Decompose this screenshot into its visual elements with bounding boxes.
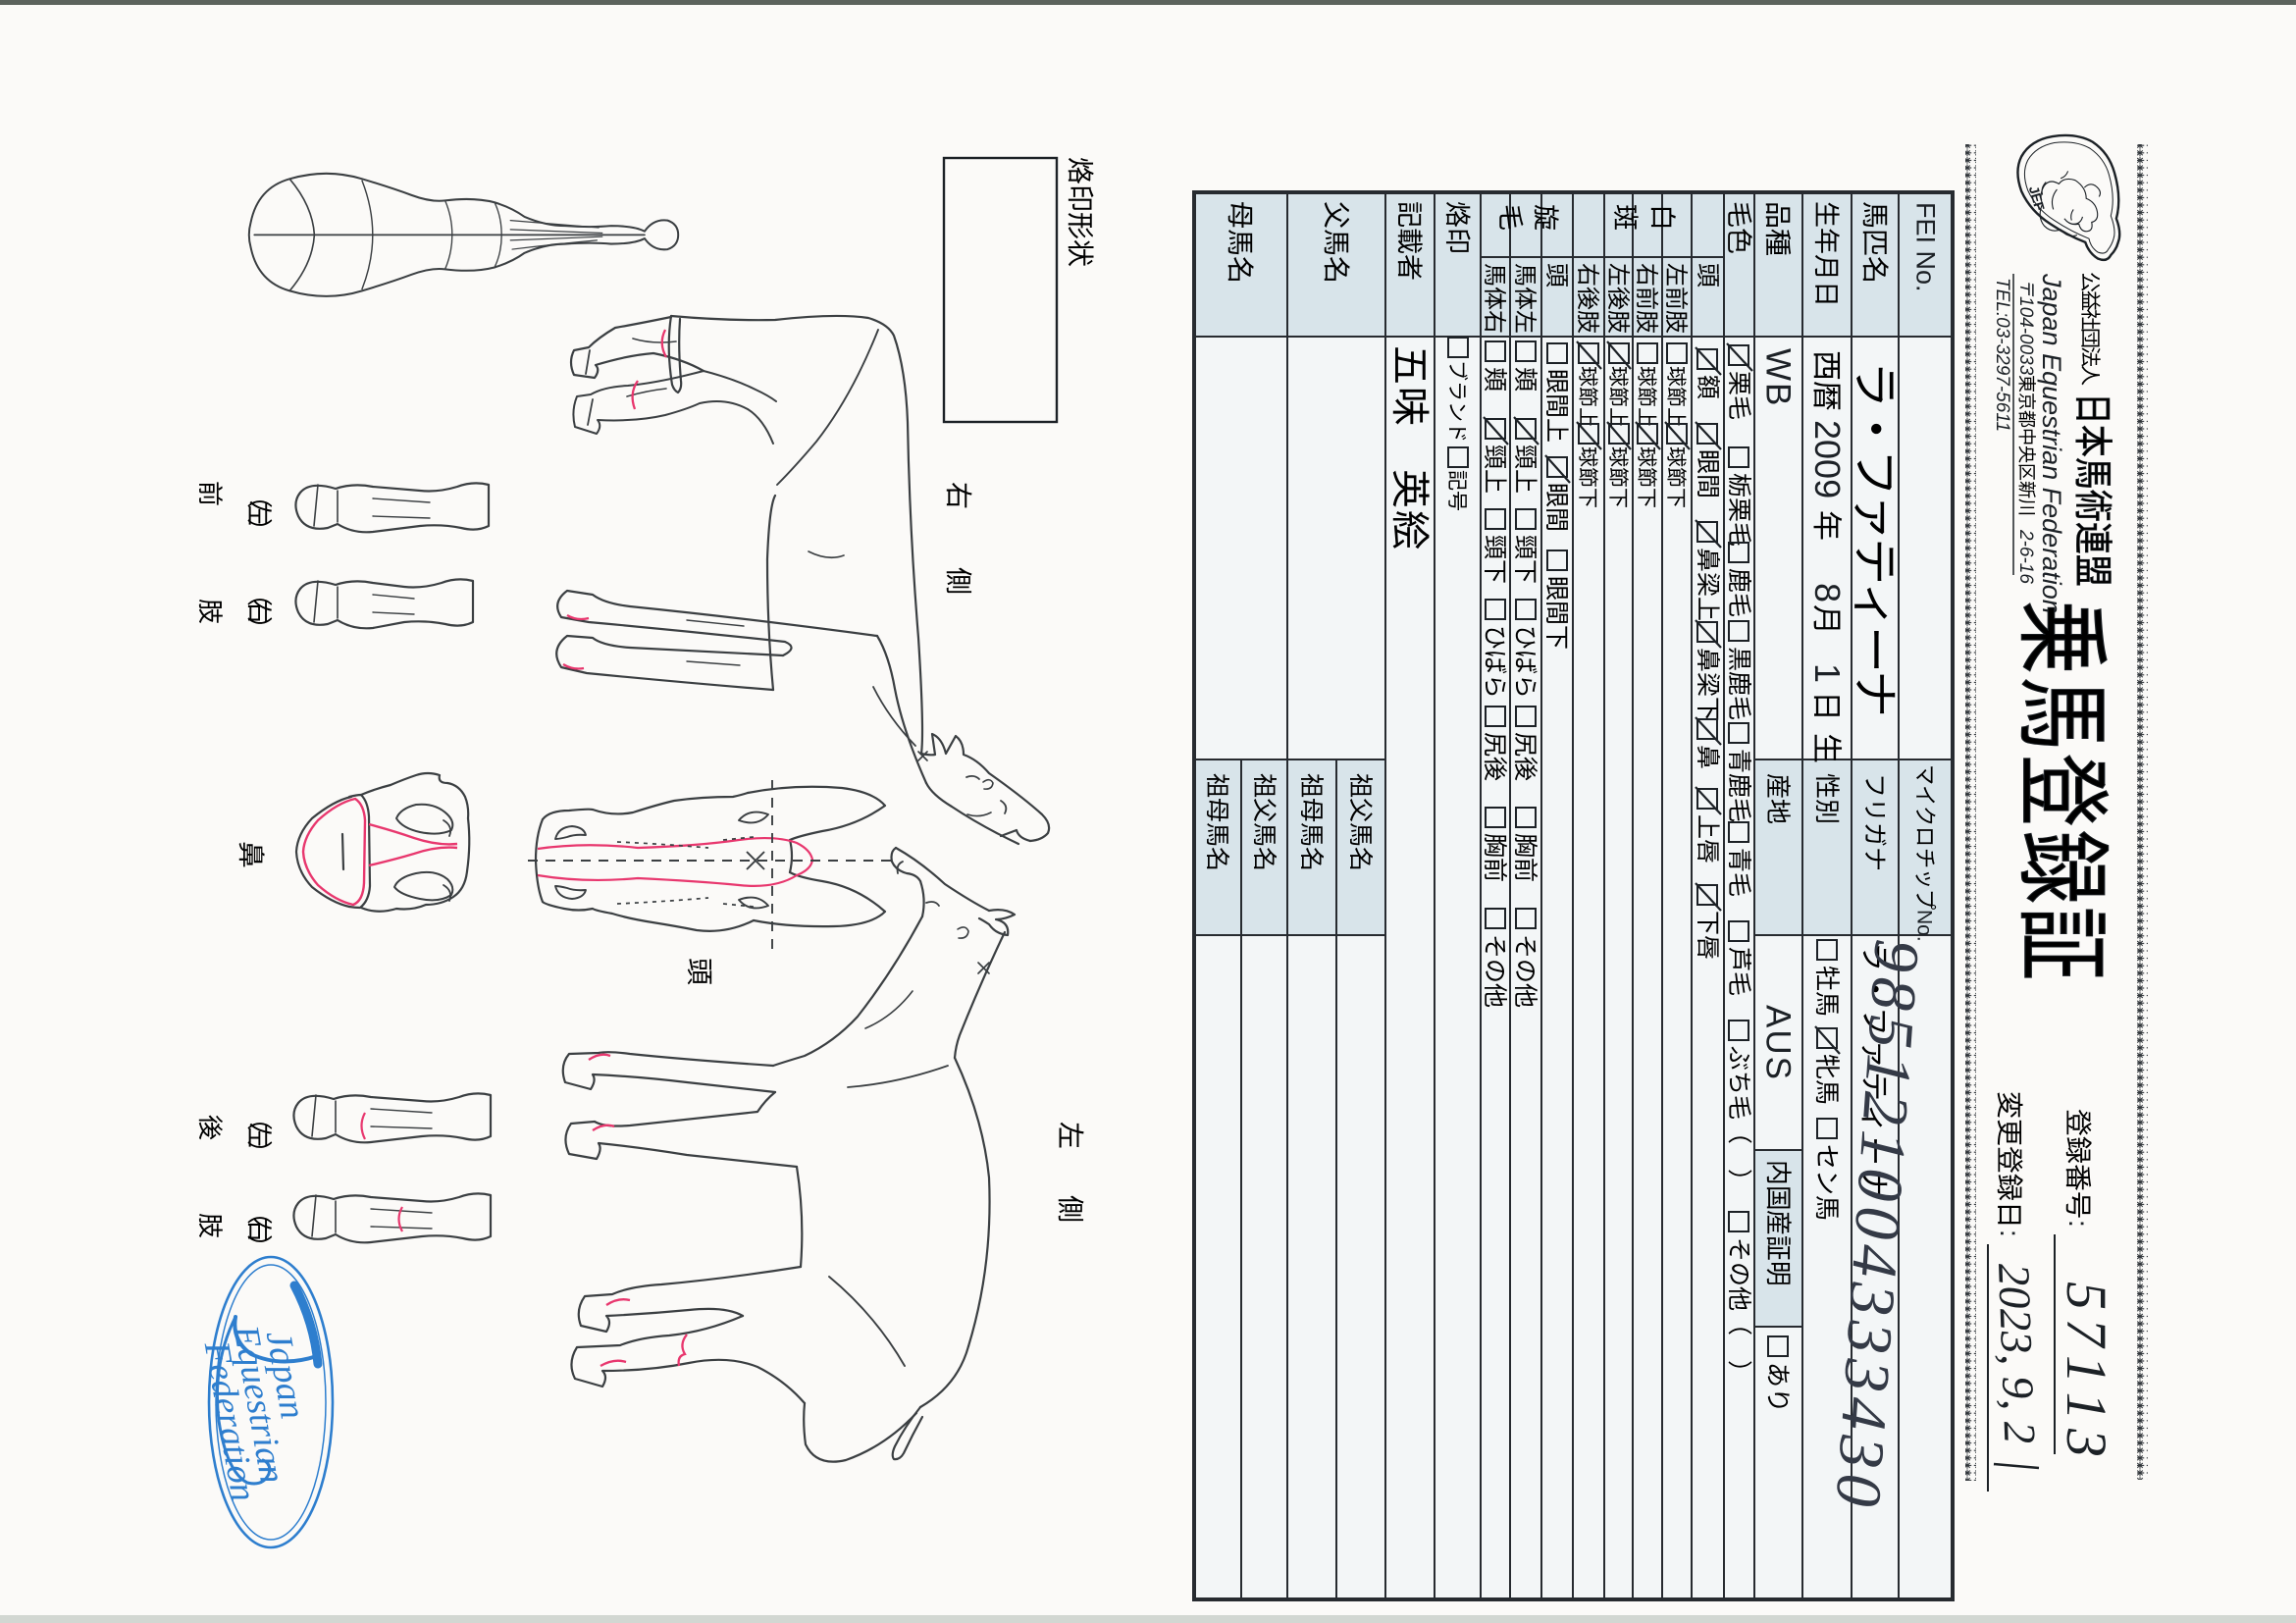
- svg-text:1: 1: [1807, 663, 1848, 683]
- svg-text:2009: 2009: [1807, 420, 1848, 498]
- svg-text:8: 8: [1807, 583, 1848, 602]
- svg-text:2023, 9, 2: 2023, 9, 2: [1989, 1263, 2045, 1445]
- svg-text::: :: [1995, 1230, 2025, 1237]
- svg-text:TEL:03-3297-5611: TEL:03-3297-5611: [1992, 278, 2012, 432]
- svg-text:〒104-0033: 〒104-0033: [2015, 278, 2036, 376]
- svg-text:Japan Equestrian Federation: Japan Equestrian Federation: [2037, 273, 2066, 614]
- svg-text:AUS: AUS: [1759, 1005, 1798, 1081]
- svg-text:WB: WB: [1759, 348, 1798, 407]
- svg-text:5 7 1 1 3: 5 7 1 1 3: [2055, 1282, 2118, 1455]
- svg-text:FEI No.: FEI No.: [1911, 202, 1941, 292]
- svg-text::: :: [2063, 1220, 2094, 1228]
- svg-text:No.: No.: [1913, 910, 1936, 942]
- svg-text:2-6-16: 2-6-16: [2015, 529, 2036, 584]
